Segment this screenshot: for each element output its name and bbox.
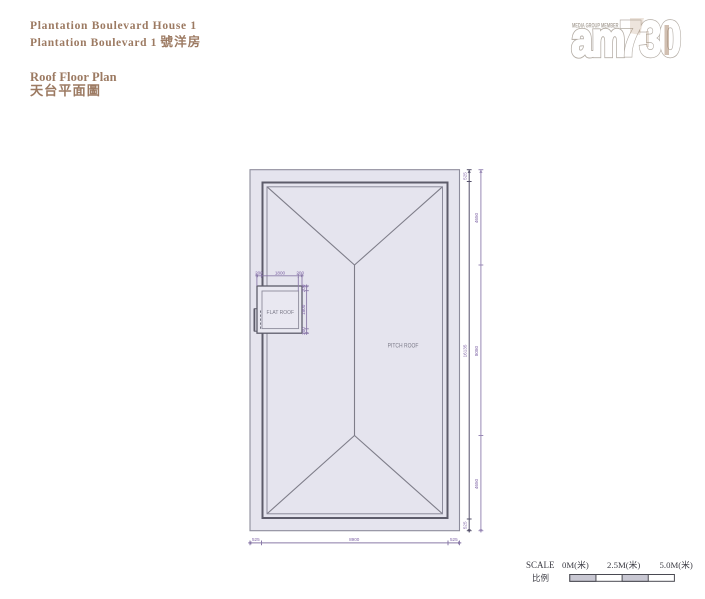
svg-text:16135: 16135 (462, 344, 467, 357)
svg-text:200: 200 (255, 270, 263, 275)
svg-text:525: 525 (462, 521, 467, 529)
svg-text:525: 525 (450, 537, 458, 542)
svg-text:525: 525 (252, 537, 260, 542)
svg-text:8080: 8080 (474, 345, 479, 356)
svg-text:4650: 4650 (474, 212, 479, 223)
svg-text:525: 525 (462, 172, 467, 180)
svg-text:8900: 8900 (349, 537, 360, 542)
svg-text:200: 200 (301, 327, 306, 335)
svg-text:1800: 1800 (275, 270, 286, 275)
svg-text:200: 200 (301, 284, 306, 292)
svg-text:PITCH ROOF: PITCH ROOF (388, 343, 419, 349)
svg-text:FLAT ROOF: FLAT ROOF (267, 310, 295, 316)
svg-text:200: 200 (296, 270, 304, 275)
svg-text:4650: 4650 (474, 478, 479, 489)
svg-text:1800: 1800 (301, 304, 306, 315)
